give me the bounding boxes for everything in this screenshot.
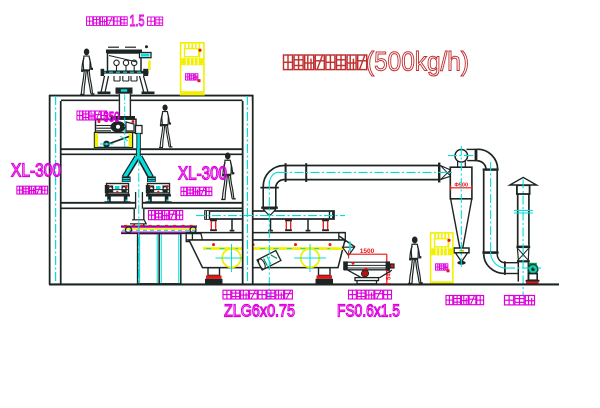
svg-text:XL-300: XL-300 bbox=[11, 161, 61, 181]
svg-text:1500: 1500 bbox=[360, 248, 375, 255]
svg-text:ZLG6x0.75: ZLG6x0.75 bbox=[224, 301, 295, 321]
svg-text:(500kg/h): (500kg/h) bbox=[366, 47, 469, 77]
svg-text:1.5: 1.5 bbox=[130, 13, 145, 30]
svg-text:350: 350 bbox=[104, 109, 120, 125]
svg-text:FS0.6x1.5: FS0.6x1.5 bbox=[337, 301, 400, 321]
svg-text:XL-300: XL-300 bbox=[178, 164, 227, 184]
